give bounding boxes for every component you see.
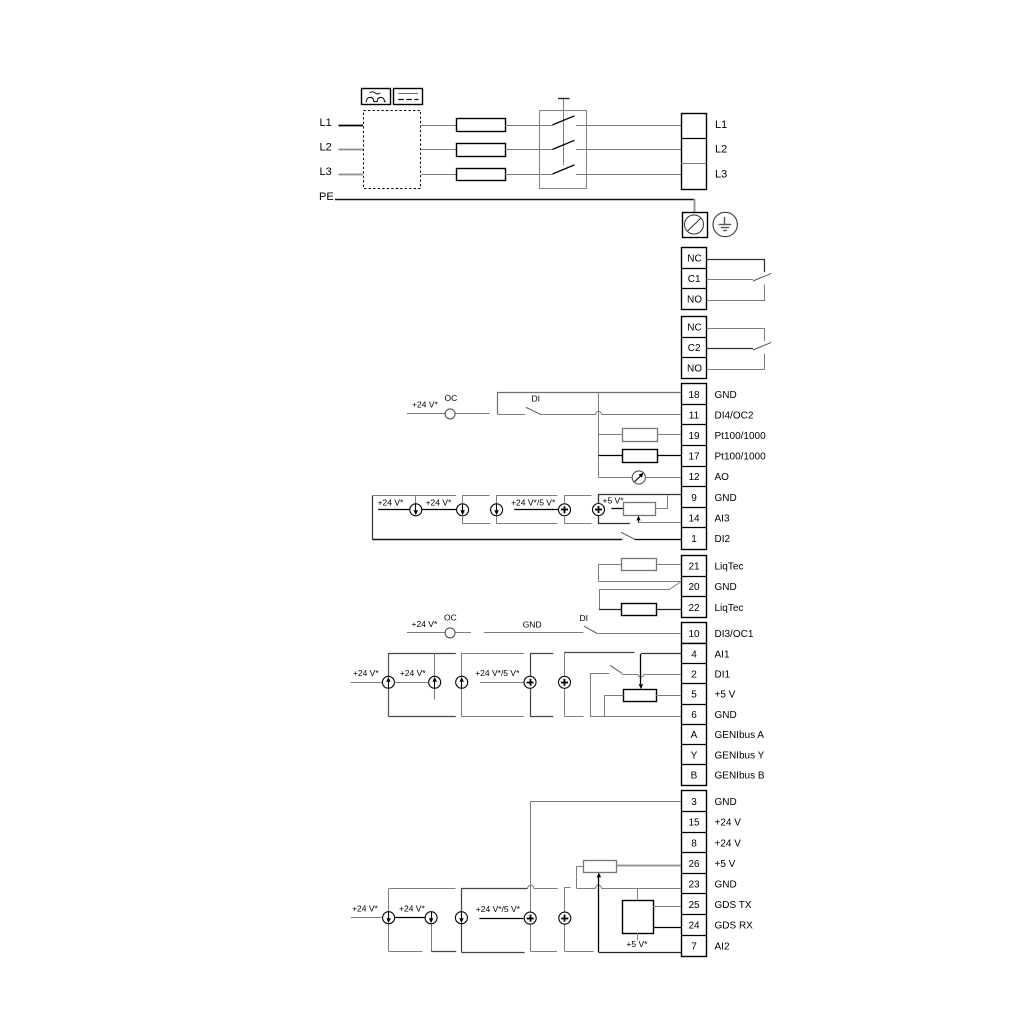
svg-text:8: 8 bbox=[691, 838, 697, 849]
svg-text:L1: L1 bbox=[715, 119, 727, 131]
svg-text:L1: L1 bbox=[320, 117, 332, 129]
svg-text:+24 V*: +24 V* bbox=[378, 498, 404, 508]
svg-text:NC: NC bbox=[687, 323, 701, 334]
svg-text:10: 10 bbox=[688, 629, 700, 640]
svg-text:11: 11 bbox=[689, 410, 700, 421]
svg-text:+24 V: +24 V bbox=[715, 818, 742, 829]
svg-text:DI3/OC1: DI3/OC1 bbox=[715, 629, 754, 640]
svg-text:LiqTec: LiqTec bbox=[715, 603, 744, 614]
svg-text:4: 4 bbox=[691, 649, 697, 660]
svg-text:L2: L2 bbox=[715, 144, 727, 156]
svg-text:+24 V: +24 V bbox=[715, 838, 742, 849]
svg-text:AI2: AI2 bbox=[715, 941, 730, 952]
svg-text:OC: OC bbox=[445, 393, 458, 403]
svg-text:18: 18 bbox=[688, 390, 700, 401]
svg-text:+24 V*/5 V*: +24 V*/5 V* bbox=[511, 498, 556, 508]
svg-text:23: 23 bbox=[688, 880, 700, 891]
svg-text:DI: DI bbox=[532, 394, 541, 404]
svg-text:C2: C2 bbox=[688, 343, 701, 354]
svg-text:DI1: DI1 bbox=[715, 670, 731, 681]
svg-text:+5 V*: +5 V* bbox=[603, 496, 625, 506]
svg-text:+5 V: +5 V bbox=[715, 859, 736, 870]
svg-text:+24 V*: +24 V* bbox=[400, 668, 426, 678]
svg-text:PE: PE bbox=[319, 191, 334, 203]
svg-text:2: 2 bbox=[691, 670, 697, 681]
svg-text:GDS RX: GDS RX bbox=[715, 921, 754, 932]
svg-text:GND: GND bbox=[715, 710, 737, 721]
svg-text:DI2: DI2 bbox=[715, 534, 731, 545]
svg-text:19: 19 bbox=[688, 431, 700, 442]
svg-text:A: A bbox=[691, 730, 698, 741]
svg-text:17: 17 bbox=[688, 452, 700, 463]
svg-text:GENIbus Y: GENIbus Y bbox=[715, 750, 765, 761]
svg-text:20: 20 bbox=[688, 582, 700, 593]
svg-text:+24 V*: +24 V* bbox=[353, 668, 379, 678]
svg-text:14: 14 bbox=[688, 513, 700, 524]
svg-text:12: 12 bbox=[688, 472, 700, 483]
svg-text:+24 V*: +24 V* bbox=[399, 904, 425, 914]
svg-text:+5 V: +5 V bbox=[715, 690, 736, 701]
svg-text:AI1: AI1 bbox=[715, 649, 730, 660]
svg-text:C1: C1 bbox=[688, 274, 701, 285]
svg-text:GND: GND bbox=[715, 880, 737, 891]
svg-text:L3: L3 bbox=[320, 166, 332, 178]
svg-text:B: B bbox=[691, 771, 698, 782]
svg-text:DI: DI bbox=[580, 613, 589, 623]
svg-text:3: 3 bbox=[691, 797, 697, 808]
svg-text:+5 V*: +5 V* bbox=[626, 939, 648, 949]
svg-text:+24 V*: +24 V* bbox=[426, 498, 452, 508]
svg-text:+24 V*/5 V*: +24 V*/5 V* bbox=[476, 904, 521, 914]
svg-text:GENIbus A: GENIbus A bbox=[715, 730, 765, 741]
svg-text:9: 9 bbox=[691, 493, 697, 504]
svg-text:+24 V*: +24 V* bbox=[412, 619, 438, 629]
svg-text:Y: Y bbox=[691, 750, 698, 761]
svg-text:5: 5 bbox=[691, 690, 697, 701]
svg-text:22: 22 bbox=[688, 603, 700, 614]
svg-text:GND: GND bbox=[715, 582, 737, 593]
svg-text:Pt100/1000: Pt100/1000 bbox=[715, 452, 767, 463]
svg-text:+24 V*: +24 V* bbox=[412, 400, 438, 410]
svg-text:OC: OC bbox=[444, 612, 457, 622]
svg-text:6: 6 bbox=[691, 710, 697, 721]
svg-text:NO: NO bbox=[687, 295, 702, 306]
svg-text:+24 V*: +24 V* bbox=[352, 904, 378, 914]
svg-text:1: 1 bbox=[691, 534, 697, 545]
svg-text:DI4/OC2: DI4/OC2 bbox=[715, 410, 754, 421]
svg-text:L3: L3 bbox=[715, 169, 727, 181]
svg-text:AI3: AI3 bbox=[715, 513, 730, 524]
svg-text:26: 26 bbox=[688, 859, 700, 870]
svg-text:AO: AO bbox=[715, 472, 730, 483]
svg-text:24: 24 bbox=[688, 921, 700, 932]
svg-text:GDS TX: GDS TX bbox=[715, 900, 752, 911]
svg-text:GND: GND bbox=[715, 797, 737, 808]
svg-text:GENIbus B: GENIbus B bbox=[715, 771, 765, 782]
svg-text:+24 V*/5 V*: +24 V*/5 V* bbox=[475, 668, 520, 678]
svg-text:NC: NC bbox=[687, 254, 701, 265]
svg-text:GND: GND bbox=[715, 390, 737, 401]
svg-text:7: 7 bbox=[691, 941, 697, 952]
svg-text:GND: GND bbox=[523, 619, 542, 629]
svg-text:NO: NO bbox=[687, 364, 702, 375]
svg-text:L2: L2 bbox=[320, 142, 332, 154]
svg-text:25: 25 bbox=[688, 900, 700, 911]
svg-text:LiqTec: LiqTec bbox=[715, 562, 744, 573]
svg-text:Pt100/1000: Pt100/1000 bbox=[715, 431, 767, 442]
svg-text:21: 21 bbox=[688, 562, 700, 573]
svg-text:15: 15 bbox=[688, 818, 700, 829]
svg-text:GND: GND bbox=[715, 493, 737, 504]
